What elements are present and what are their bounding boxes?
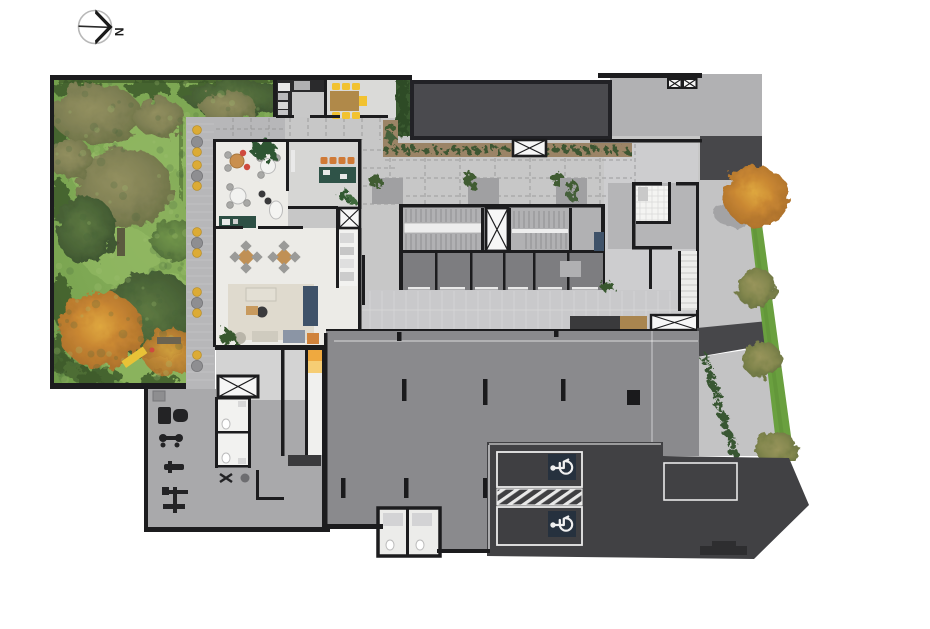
svg-text:N: N bbox=[112, 28, 126, 37]
